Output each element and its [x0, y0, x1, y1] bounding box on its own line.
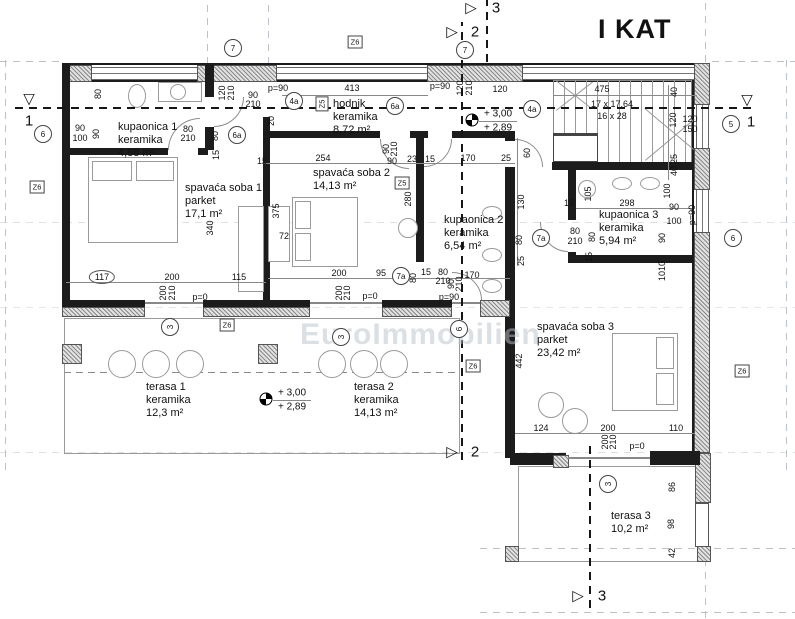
grid-bubble: 4a	[285, 92, 303, 110]
wall-hatch	[694, 232, 710, 453]
wall-hatch	[62, 307, 145, 317]
grid-line	[712, 61, 795, 62]
sliding-door	[310, 302, 382, 304]
grid-bubble: 7	[456, 41, 474, 59]
room-label: spavaća soba 214,13 m²	[313, 167, 390, 193]
dimension-label: 280	[403, 191, 413, 206]
section-line-1	[15, 107, 755, 109]
zone-label: Z5	[316, 97, 329, 112]
dimension-label: 210	[226, 85, 236, 100]
window	[92, 67, 197, 80]
zone-label: Z6	[30, 181, 45, 194]
zone-label: Z6	[466, 360, 481, 373]
dimension-line	[282, 95, 428, 96]
level-marker-icon	[260, 393, 273, 406]
pillow	[656, 373, 674, 405]
dimension-label: 15	[584, 252, 594, 262]
dimension-label: 120	[682, 114, 697, 124]
room-label: kupaonica 1keramika4,88 m²	[118, 121, 177, 160]
dimension-label: 170	[460, 153, 475, 163]
toilet	[128, 84, 146, 108]
dimension-label: 124	[533, 423, 548, 433]
dimension-label: 210	[180, 133, 195, 143]
dimension-label: 210	[608, 434, 618, 449]
room-label: terasa 2keramika14,13 m²	[354, 381, 399, 420]
dimension-label: p=90	[439, 292, 459, 302]
dimension-label: 413	[344, 83, 359, 93]
dimension-label: 95	[376, 268, 386, 278]
pillow	[295, 201, 311, 229]
dimension-label: 210	[389, 141, 399, 156]
window	[277, 67, 427, 80]
grid-bubble: 6	[724, 229, 742, 247]
dimension-label: 200	[164, 272, 179, 282]
grid-bubble: 5	[722, 115, 740, 133]
terrace-3-side-wall	[695, 503, 709, 547]
section-marker-arrow: ▷	[572, 589, 584, 604]
grid-line	[268, 0, 269, 64]
stair-closet	[553, 133, 598, 162]
dimension-label: 105	[583, 186, 593, 201]
dimension-label: 210	[567, 236, 582, 246]
dimension-label: 375	[271, 203, 281, 218]
door-arc	[214, 97, 244, 127]
grid-bubble: 6	[34, 125, 52, 143]
washbasin	[170, 84, 186, 100]
wall-segment	[650, 451, 700, 465]
wall-hatch	[553, 455, 569, 468]
window	[696, 105, 709, 148]
grid-line	[0, 61, 62, 62]
dimension-label: 1010	[657, 261, 667, 281]
dimension-label: 86	[667, 482, 677, 492]
grid-bubble: 3	[332, 328, 350, 346]
wall-hatch	[203, 307, 310, 317]
toilet	[482, 279, 502, 293]
dimension-label: 90	[669, 202, 679, 212]
dimension-label: 90	[91, 129, 101, 139]
dimension-label: 15	[211, 150, 221, 160]
wall-segment	[568, 170, 576, 220]
wall-hatch	[382, 307, 452, 317]
dimension-label: 25	[501, 153, 511, 163]
dimension-label: 23	[407, 154, 417, 164]
stair-tread	[663, 80, 664, 162]
section-marker-arrow: ▽	[23, 92, 35, 107]
room-label: terasa 1keramika12,3 m²	[146, 381, 191, 420]
dimension-label: p=90	[430, 81, 450, 91]
toilet	[640, 177, 660, 190]
section-marker-number: 3	[598, 588, 606, 605]
grid-line	[207, 0, 208, 64]
pillow	[295, 233, 311, 261]
grid-line	[480, 612, 795, 613]
dimension-label: 40	[669, 166, 679, 176]
pillow	[92, 161, 132, 181]
sliding-door	[145, 302, 203, 304]
grid-bubble: 7	[224, 39, 242, 57]
dimension-label: 42	[667, 548, 677, 558]
window	[523, 67, 694, 80]
section-marker-number: 2	[471, 444, 479, 461]
terrace-column	[258, 344, 278, 364]
room-label: spavaća soba 1parket17,1 m²	[185, 182, 262, 221]
terrace-column	[697, 546, 711, 562]
terrace-furniture	[142, 350, 170, 378]
dimension-label: 90	[75, 123, 85, 133]
dimension-label: 90	[387, 156, 397, 166]
terrace-furniture	[380, 350, 408, 378]
dimension-label: p=0	[192, 292, 207, 302]
dimension-label: 475	[594, 84, 609, 94]
dimension-label: 254	[315, 153, 330, 163]
dimension-label: 72	[279, 231, 289, 241]
dimension-label: 150	[682, 124, 697, 134]
zone-label: Z6	[348, 36, 363, 49]
dimension-label: 80	[210, 131, 220, 141]
stair-tread	[641, 80, 642, 162]
dimension-label: 340	[205, 220, 215, 235]
dimension-label: 210	[454, 276, 464, 291]
dimension-label: p=0	[629, 441, 644, 451]
sliding-door	[568, 457, 650, 459]
wall-segment	[203, 300, 310, 307]
level-underline	[273, 400, 311, 401]
window	[696, 190, 709, 232]
dimension-label: 210	[464, 80, 474, 95]
dimension-label: 80	[570, 226, 580, 236]
pillow	[136, 161, 174, 181]
section-marker-arrow: ▷	[446, 445, 458, 460]
grid-bubble: 4a	[523, 100, 541, 118]
section-marker-arrow: ▷	[446, 25, 458, 40]
section-marker-number: 1	[25, 113, 33, 130]
zone-label: Z6	[220, 319, 235, 332]
dimension-label: 90	[657, 233, 667, 243]
room-label: hodnikkeramika8,72 m²	[333, 98, 378, 137]
dimension-label: 210	[342, 285, 352, 300]
section-marker-number: 3	[492, 0, 500, 17]
dimension-label: 120	[668, 112, 678, 127]
dimension-label: 40	[669, 87, 679, 97]
dimension-label: 20	[266, 116, 276, 126]
dimension-label: 15	[564, 198, 574, 208]
terrace-column	[505, 546, 519, 562]
wall-hatch	[427, 65, 523, 82]
level-value: + 2,89	[278, 402, 306, 413]
dimension-label: p=90	[268, 83, 288, 93]
dimension-label: 80	[587, 232, 597, 242]
grid-line	[5, 55, 6, 470]
chair	[562, 408, 588, 434]
wall-segment	[205, 64, 214, 97]
wall-hatch	[694, 63, 710, 105]
dimension-label: 80	[93, 89, 103, 99]
chair	[538, 392, 564, 418]
grid-bubble: 7a	[532, 229, 550, 247]
dimension-label: 100	[72, 133, 87, 143]
terrace-furniture	[108, 350, 136, 378]
terrace-furniture	[176, 350, 204, 378]
dimension-label: p=90	[687, 205, 697, 225]
wall-segment	[416, 131, 424, 262]
level-marker-icon	[466, 114, 479, 127]
dimension-label: 130	[516, 194, 526, 209]
wall-segment	[62, 300, 145, 307]
dimension-label: 110	[669, 423, 683, 433]
grid-line	[786, 55, 787, 470]
toilet	[612, 177, 632, 190]
room-label: spavaća soba 3parket23,42 m²	[537, 321, 614, 360]
terrace-column	[62, 344, 82, 364]
level-value: + 2,89	[484, 123, 512, 134]
dimension-label: 80	[514, 235, 524, 245]
dimension-label: 60	[522, 148, 532, 158]
grid-bubble: 3	[161, 318, 179, 336]
dimension-label: 170	[464, 270, 479, 280]
page-title: I KAT	[598, 14, 672, 45]
grid-bubble: 3	[599, 475, 617, 493]
stair-note: 17 x 17,6416 x 28	[591, 98, 633, 122]
dimension-label: 200	[331, 268, 346, 278]
dimension-label: 15	[421, 267, 431, 277]
room-label: kupaonica 3keramika5,94 m²	[599, 209, 658, 248]
wall-segment	[692, 80, 694, 453]
section-marker-arrow: ▷	[465, 1, 477, 16]
level-underline	[479, 121, 517, 122]
grid-bubble: 6a	[228, 126, 246, 144]
dimension-label: 120	[492, 84, 507, 94]
wall-hatch	[694, 148, 710, 190]
grid-bubble: 7a	[392, 267, 410, 285]
dimension-label: 98	[666, 519, 676, 529]
wall-segment	[62, 63, 70, 308]
stair-tread	[652, 80, 653, 162]
zone-label: Z6	[735, 365, 750, 378]
section-marker-arrow: ▽	[741, 93, 753, 108]
dimension-label: 298	[619, 198, 634, 208]
dimension-label: 15	[257, 156, 267, 166]
section-marker-number: 2	[471, 24, 479, 41]
dimension-label: 115	[232, 272, 246, 282]
section-line-3	[486, 0, 488, 62]
level-value: + 3,00	[278, 388, 306, 399]
grid-line	[705, 0, 706, 62]
dimension-label: 15	[425, 154, 435, 164]
level-value: + 3,00	[484, 109, 512, 120]
room-label: terasa 310,2 m²	[611, 510, 651, 536]
grid-bubble: 6	[450, 320, 468, 338]
dimension-label: 210	[245, 99, 260, 109]
dimension-label: 25	[669, 154, 679, 164]
dimension-label: p=0	[362, 291, 377, 301]
dimension-label: 210	[167, 285, 177, 300]
washbasin	[398, 218, 418, 238]
corner-pier	[480, 300, 510, 317]
section-marker-number: 1	[747, 114, 755, 131]
floor-plan: I KAT EuroImmobilien p=90413p=9012047512…	[0, 0, 795, 619]
zone-label: Z5	[395, 177, 410, 190]
dimension-label: 100	[666, 216, 681, 226]
terrace-furniture	[318, 350, 346, 378]
dimension-label: 100	[662, 183, 672, 198]
dimension-label: 200	[600, 423, 615, 433]
dimension-label: 442	[514, 353, 524, 368]
wall-segment	[62, 63, 710, 65]
pillow	[656, 337, 674, 369]
dimension-label: 15	[262, 131, 272, 141]
section-line-3	[589, 440, 591, 608]
dimension-label: 25	[516, 256, 526, 266]
room-label: kupaonica 2keramika6,54 m²	[444, 214, 503, 253]
grid-bubble: 6a	[386, 97, 404, 115]
terrace-furniture	[350, 350, 378, 378]
